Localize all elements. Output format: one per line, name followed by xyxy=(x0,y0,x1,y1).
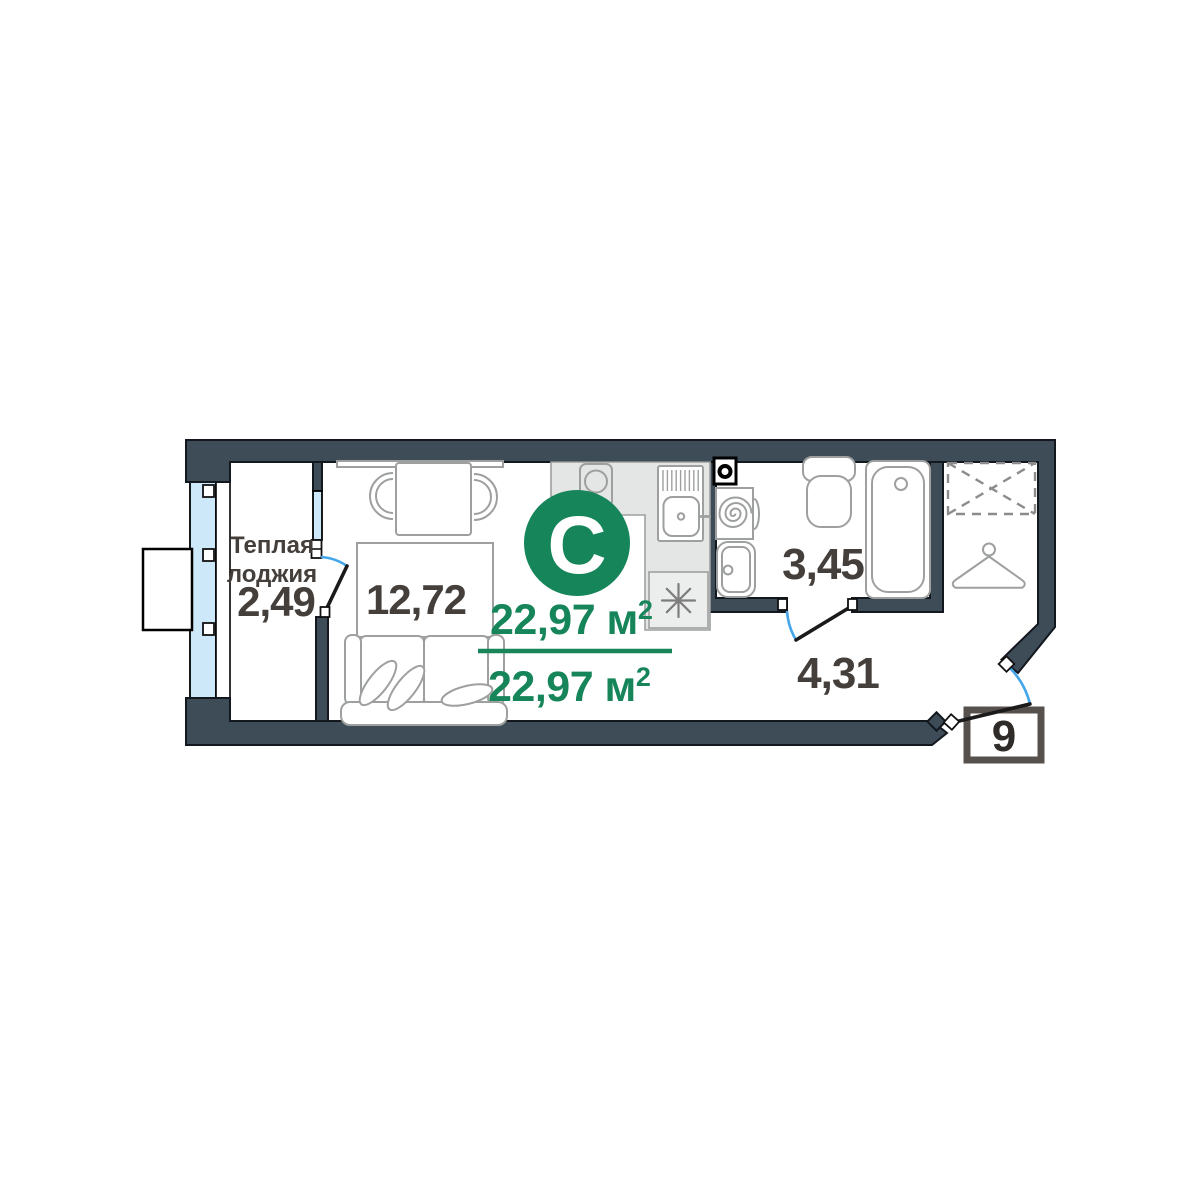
chair-icon xyxy=(370,473,393,519)
door-jamb xyxy=(944,714,960,730)
door-jamb xyxy=(321,607,330,617)
kitchen-sink-icon xyxy=(658,466,711,541)
door-swing-arc xyxy=(787,611,796,640)
window-mullion xyxy=(203,485,214,497)
window-mullion xyxy=(203,623,214,635)
fridge-snowflake-icon xyxy=(649,572,708,628)
window-sill xyxy=(216,480,230,698)
total-area-alt-value: 22,97 м xyxy=(488,663,636,711)
bathroom-sink-icon xyxy=(717,542,755,597)
sofa-armrest xyxy=(345,635,361,705)
door-jamb xyxy=(778,599,787,610)
area-summary: С 22,97 м2 22,97 м2 xyxy=(478,490,672,711)
floor-plan: Теплая лоджия 2,49 12,72 xyxy=(0,0,1200,1200)
wardrobe-icon xyxy=(948,463,1035,514)
total-area-value: 22,97 м xyxy=(490,596,638,644)
bathroom-door xyxy=(778,599,857,640)
door-leaf xyxy=(796,606,852,640)
loggia-partition-window xyxy=(313,491,322,540)
studio-type-letter: С xyxy=(547,500,606,591)
loggia-area: 2,49 xyxy=(237,578,315,625)
loggia-label-line1: Теплая xyxy=(230,532,314,559)
bathtub-icon xyxy=(866,461,930,598)
loggia-door xyxy=(321,557,348,617)
chair-icon xyxy=(474,474,497,520)
room-loggia: Теплая лоджия 2,49 xyxy=(227,532,317,625)
total-area-sup: 2 xyxy=(638,595,653,625)
loggia-partition-top xyxy=(313,462,322,491)
living-room-area: 12,72 xyxy=(366,576,466,623)
sofa xyxy=(341,635,507,725)
door-swing-arc xyxy=(321,557,347,566)
hallway-area: 4,31 xyxy=(797,649,879,698)
loggia-partition-bottom xyxy=(316,617,328,721)
total-area: 22,97 м2 xyxy=(490,595,652,644)
loggia-glazing xyxy=(190,480,230,698)
total-area-alt-sup: 2 xyxy=(636,662,651,692)
total-area-alt: 22,97 м2 xyxy=(488,662,650,711)
ac-basket xyxy=(143,549,192,630)
living-room: 12,72 xyxy=(337,461,507,725)
toilet-icon xyxy=(803,457,855,527)
door-leaf xyxy=(325,566,347,612)
apartment-number: 9 xyxy=(992,712,1016,761)
window-glass-strip xyxy=(190,480,216,698)
bathroom: 3,45 xyxy=(714,457,930,598)
door-jamb xyxy=(848,599,857,610)
washing-machine-icon xyxy=(716,488,759,539)
ventilation-icon xyxy=(714,458,736,484)
hanger-icon xyxy=(953,544,1025,588)
dining-table xyxy=(396,463,471,535)
window-mullion xyxy=(203,549,214,561)
bathroom-area: 3,45 xyxy=(782,540,864,589)
